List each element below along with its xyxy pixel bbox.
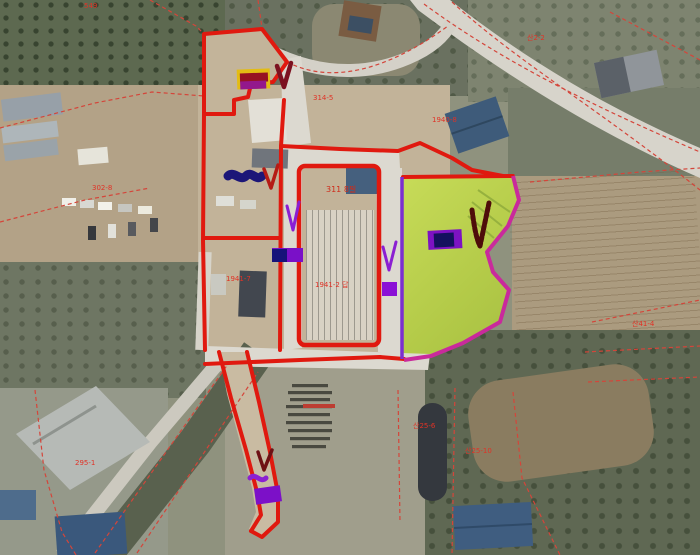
brown-solar-building [338,0,381,42]
parcel-label: 314-5 [313,94,333,102]
purple-scribble-bottom [250,476,266,479]
parcel-label: 산25-10 [465,446,492,455]
highlight-bar-annotation [237,68,271,89]
blue-building-bottomleft-2 [0,490,36,520]
parcel-label: 1941-2 답 [315,280,349,289]
blue-building-bottom [453,502,533,550]
parcel-label: 1940-8 [432,116,457,124]
parcel-label: 311 8필 [326,184,356,194]
handwritten-note-block [286,384,335,448]
parcel-label: 산2-2 [527,33,545,42]
map-overlay: 549 산2-2 314-5 311 8필 1941-2 답 1941-7 19… [0,0,700,555]
quonset-building [418,403,447,501]
blue-building-right [445,96,510,153]
warehouse-left-1 [1,92,63,121]
parcel-label: 549 [84,2,97,10]
parcel-label: 295-1 [75,459,95,467]
white-shed-center [211,274,226,295]
purple-navy-mark-green-parcel [427,229,462,250]
parcel-label: 1941-7 [226,275,251,283]
gray-building-topright [594,50,664,99]
magenta-boundary [404,176,519,360]
navy-scribble [228,174,262,177]
white-shed-left [77,147,108,166]
parked-cars [62,196,256,240]
aerial-map-viewport: 549 산2-2 314-5 311 8필 1941-2 답 1941-7 19… [0,0,700,555]
check-mark-red-left [264,165,278,188]
blue-building-bottomleft-1 [55,512,128,555]
note-red-line [303,404,335,408]
parcel-label: 산41-4 [632,319,655,328]
parcel-label: 302-8 [92,184,112,192]
parcel-label: 산25-6 [413,421,436,430]
cadastral-dashed-lines [0,0,700,555]
purple-navy-bar [272,248,303,262]
purple-square-road [382,282,397,296]
